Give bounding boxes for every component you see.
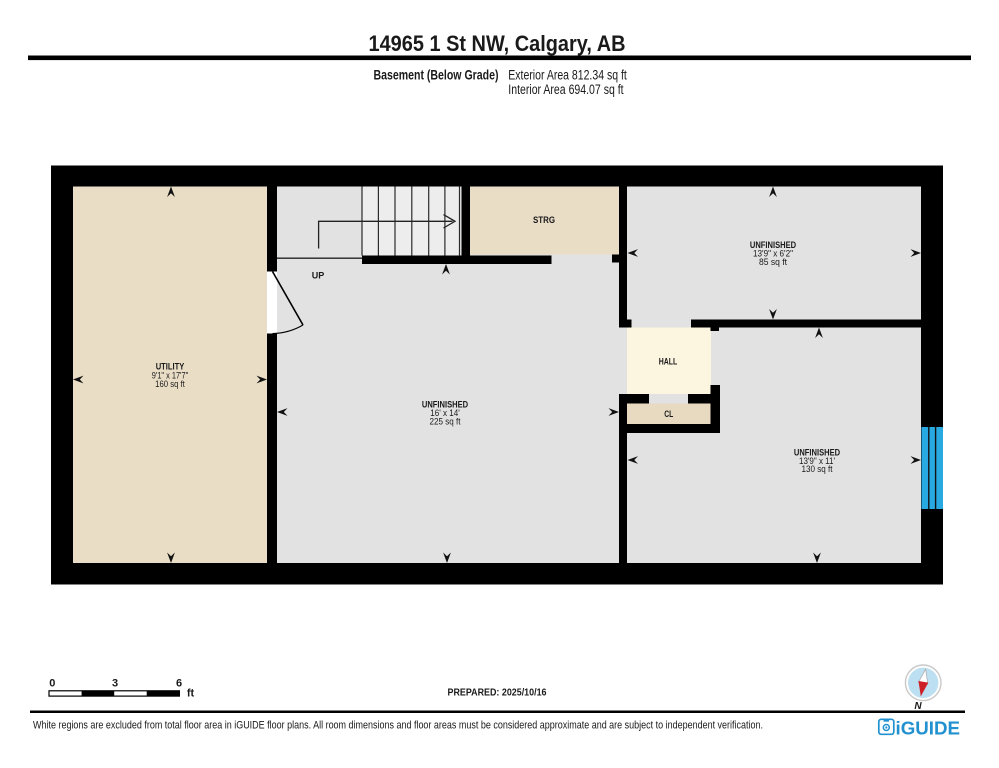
- svg-text:PREPARED: 2025/10/16: PREPARED: 2025/10/16: [448, 687, 547, 698]
- svg-text:225 sq ft: 225 sq ft: [430, 417, 461, 427]
- svg-text:Interior Area 694.07 sq ft: Interior Area 694.07 sq ft: [508, 82, 624, 97]
- svg-text:UP: UP: [312, 271, 325, 281]
- svg-text:14965 1 St NW, Calgary, AB: 14965 1 St NW, Calgary, AB: [369, 31, 626, 56]
- svg-text:iGUIDE: iGUIDE: [896, 717, 961, 738]
- svg-text:Basement (Below Grade): Basement (Below Grade): [374, 68, 499, 83]
- svg-text:6: 6: [176, 678, 182, 690]
- svg-text:160 sq ft: 160 sq ft: [155, 379, 185, 389]
- svg-text:HALL: HALL: [659, 357, 678, 367]
- svg-text:N: N: [914, 701, 922, 712]
- svg-text:0: 0: [49, 678, 55, 690]
- svg-text:Exterior Area 812.34 sq ft: Exterior Area 812.34 sq ft: [508, 68, 627, 83]
- svg-text:White regions are excluded fro: White regions are excluded from total fl…: [33, 720, 763, 732]
- svg-text:ft: ft: [187, 688, 195, 700]
- svg-text:CL: CL: [664, 409, 673, 419]
- svg-text:3: 3: [112, 678, 118, 690]
- svg-text:130 sq ft: 130 sq ft: [802, 464, 833, 474]
- svg-text:STRG: STRG: [533, 215, 555, 225]
- svg-text:85 sq ft: 85 sq ft: [759, 257, 787, 267]
